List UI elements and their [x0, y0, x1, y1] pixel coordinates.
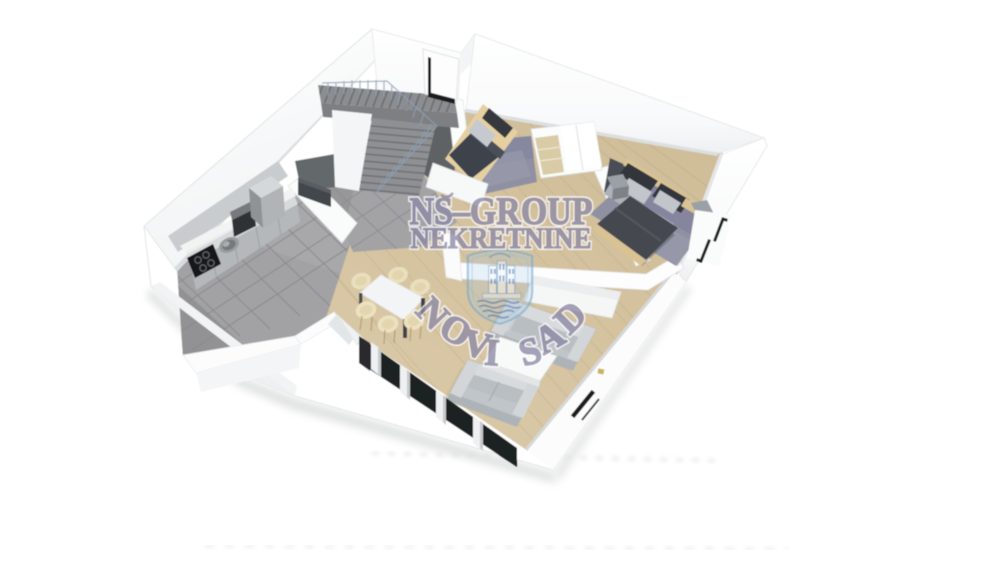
svg-text:NEKRETNINE: NEKRETNINE — [411, 222, 592, 255]
svg-text:I: I — [483, 332, 501, 375]
